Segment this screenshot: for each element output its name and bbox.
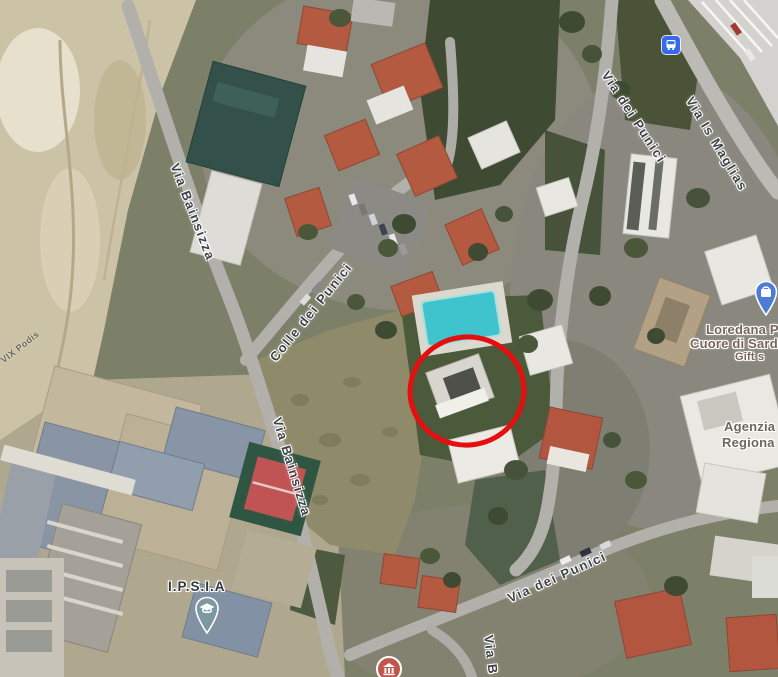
bus-stop-icon[interactable] (662, 36, 680, 54)
bus-glyph (665, 39, 677, 51)
place-label-agency-line2[interactable]: Regiona (722, 435, 775, 450)
place-label-agency-line1[interactable]: Agenzia (724, 419, 775, 434)
place-label-gift-shop-line2[interactable]: Cuore di Sardeg (690, 336, 778, 351)
place-label-gift-shop-line3[interactable]: Gift s (735, 351, 764, 363)
place-label-gift-shop-line1[interactable]: Loredana Pod (706, 322, 778, 337)
shopping-pin-glyph (752, 280, 778, 316)
school-pin-icon[interactable] (193, 596, 221, 634)
temple-glyph (382, 662, 396, 676)
graduation-cap-pin-glyph (193, 596, 221, 634)
satellite-imagery (0, 0, 778, 677)
temple-poi-icon[interactable] (376, 656, 402, 677)
satellite-map-viewport[interactable]: Via Bainsizza Via Bainsizza Colle dei Pu… (0, 0, 778, 677)
place-label-ipsia[interactable]: I.P.S.I.A (168, 579, 226, 594)
gift-shop-pin-icon[interactable] (752, 280, 778, 318)
